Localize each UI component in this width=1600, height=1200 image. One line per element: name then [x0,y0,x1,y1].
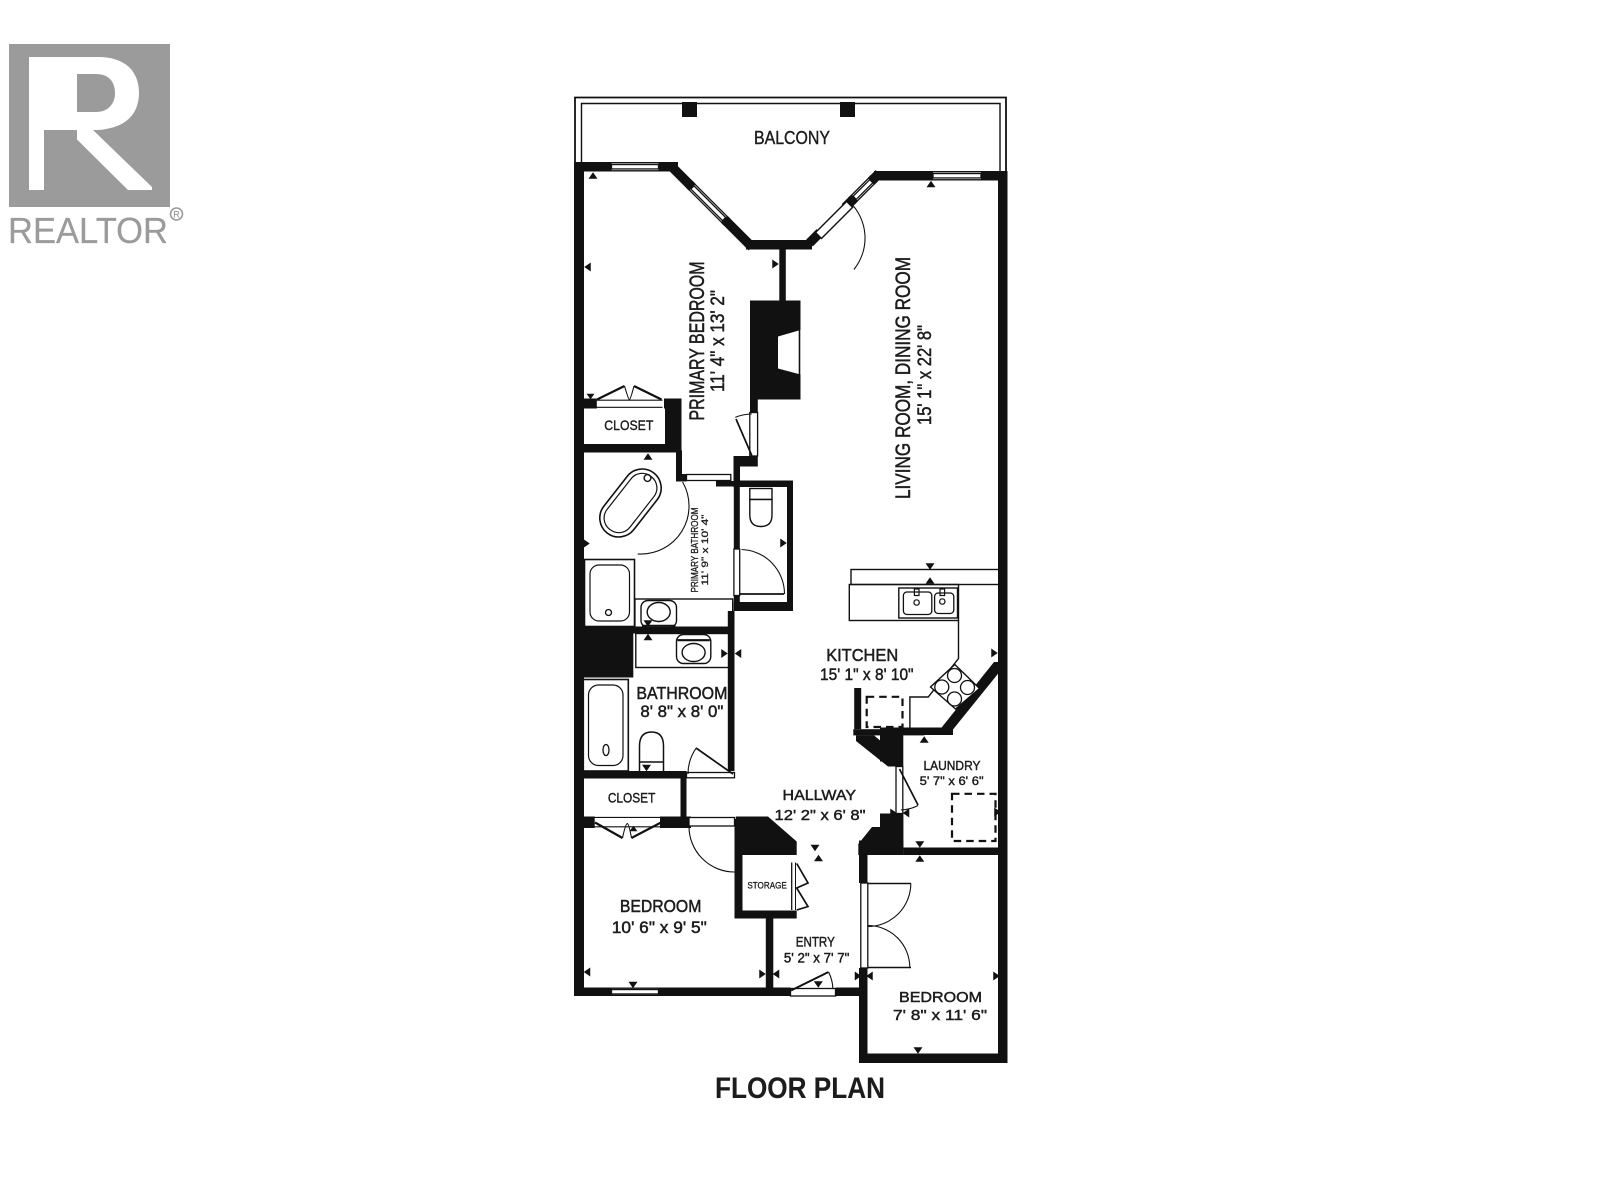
svg-text:BEDROOM: BEDROOM [899,989,982,1006]
svg-text:12' 2" x 6' 8": 12' 2" x 6' 8" [775,807,866,824]
svg-text:FLOOR PLAN: FLOOR PLAN [715,1072,885,1105]
svg-text:7' 8" x 11' 6": 7' 8" x 11' 6" [893,1007,987,1024]
svg-text:11' 4" x 13' 2": 11' 4" x 13' 2" [707,290,729,392]
svg-text:ENTRY: ENTRY [796,934,836,950]
svg-text:STORAGE: STORAGE [747,880,787,890]
svg-text:LIVING ROOM, DINING ROOM: LIVING ROOM, DINING ROOM [891,257,915,499]
svg-text:5' 2" x 7' 7": 5' 2" x 7' 7" [784,951,850,966]
svg-text:10' 6" x 9' 5": 10' 6" x 9' 5" [612,918,707,937]
svg-text:8' 8" x 8' 0": 8' 8" x 8' 0" [640,702,723,721]
svg-text:15' 1" x 22' 8": 15' 1" x 22' 8" [914,325,936,425]
svg-text:HALLWAY: HALLWAY [783,787,857,804]
svg-text:PRIMARY BEDROOM: PRIMARY BEDROOM [685,262,709,421]
svg-text:KITCHEN: KITCHEN [826,645,898,665]
svg-text:REALTOR: REALTOR [8,210,168,251]
svg-text:CLOSET: CLOSET [608,790,656,806]
svg-text:5' 7" x 6' 6": 5' 7" x 6' 6" [920,774,984,788]
svg-text:CLOSET: CLOSET [604,417,653,433]
svg-text:LAUNDRY: LAUNDRY [924,759,982,773]
svg-text:BALCONY: BALCONY [754,127,830,148]
svg-text:R: R [173,210,180,220]
svg-text:15' 1" x 8' 10": 15' 1" x 8' 10" [820,665,914,684]
svg-text:11' 9" x 10' 4": 11' 9" x 10' 4" [700,515,711,586]
svg-text:BEDROOM: BEDROOM [620,896,702,916]
svg-text:BATHROOM: BATHROOM [636,683,727,703]
